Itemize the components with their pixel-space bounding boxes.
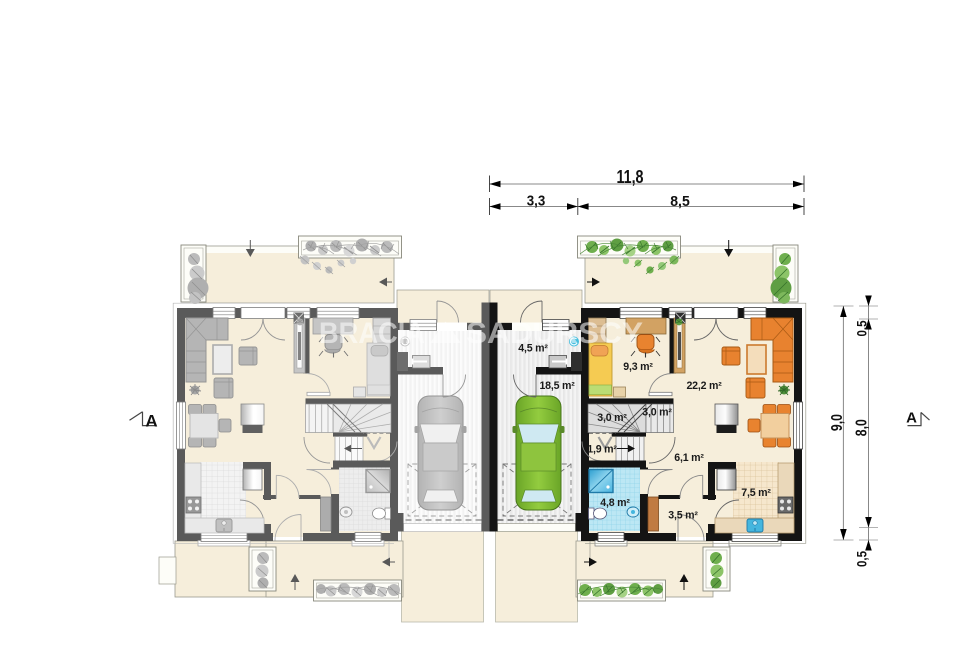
- svg-text:A: A: [145, 412, 157, 431]
- svg-text:7,5 m²: 7,5 m²: [741, 487, 771, 499]
- svg-text:8,5: 8,5: [670, 193, 690, 210]
- svg-text:11,8: 11,8: [617, 167, 644, 187]
- svg-text:3,0 m²: 3,0 m²: [642, 407, 672, 419]
- svg-text:6,1 m²: 6,1 m²: [674, 452, 704, 464]
- svg-text:3,5 m²: 3,5 m²: [668, 510, 698, 522]
- svg-text:22,2 m²: 22,2 m²: [686, 380, 722, 392]
- svg-text:8,0: 8,0: [854, 419, 871, 436]
- svg-text:A: A: [906, 410, 917, 427]
- svg-text:3,0 m²: 3,0 m²: [597, 412, 627, 424]
- svg-text:0,5: 0,5: [854, 551, 870, 567]
- svg-text:18,5 m²: 18,5 m²: [539, 380, 575, 392]
- svg-text:4,8 m²: 4,8 m²: [600, 497, 630, 509]
- svg-text:9,0: 9,0: [829, 414, 846, 431]
- svg-text:0,5: 0,5: [854, 320, 870, 336]
- svg-text:SADURSCY: SADURSCY: [466, 317, 643, 350]
- svg-text:9,3 m²: 9,3 m²: [623, 361, 653, 373]
- svg-text:1,9 m²: 1,9 m²: [587, 444, 617, 456]
- svg-text:BRACIA: BRACIA: [319, 317, 425, 350]
- svg-text:3,3: 3,3: [527, 192, 546, 209]
